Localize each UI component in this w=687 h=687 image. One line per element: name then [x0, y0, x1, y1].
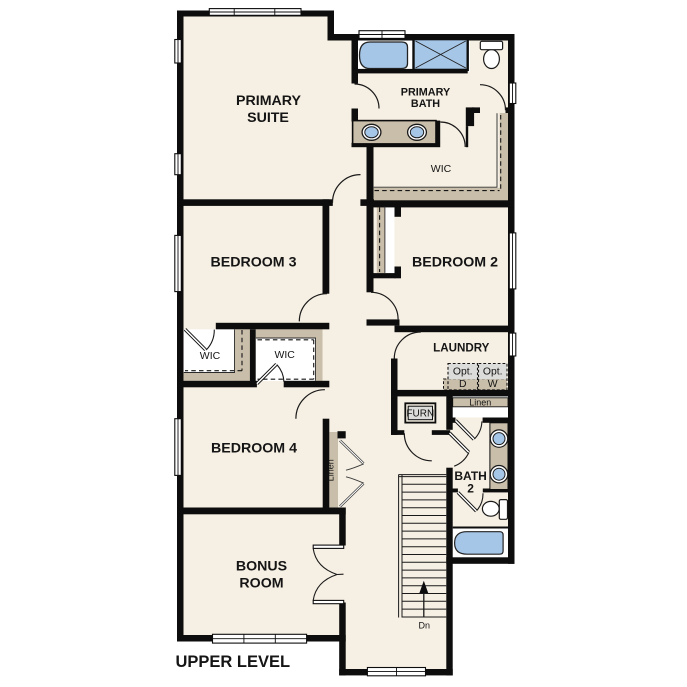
svg-text:Dn: Dn [419, 621, 431, 631]
svg-text:W: W [488, 379, 498, 390]
svg-text:D: D [459, 379, 467, 390]
svg-text:Linen: Linen [326, 459, 336, 481]
svg-text:BONUS: BONUS [236, 559, 287, 575]
svg-text:BATH: BATH [411, 98, 440, 110]
svg-text:WIC: WIC [431, 163, 452, 175]
svg-text:UPPER LEVEL: UPPER LEVEL [176, 653, 291, 671]
svg-text:Opt.: Opt. [483, 367, 503, 378]
svg-text:ROOM: ROOM [239, 576, 283, 592]
svg-text:Linen: Linen [469, 397, 491, 407]
svg-text:PRIMARY: PRIMARY [401, 86, 451, 98]
svg-text:BEDROOM 3: BEDROOM 3 [211, 254, 297, 270]
svg-text:BEDROOM 2: BEDROOM 2 [412, 254, 498, 270]
svg-text:Opt.: Opt. [453, 367, 473, 378]
svg-text:LAUNDRY: LAUNDRY [433, 342, 490, 355]
svg-text:BEDROOM 4: BEDROOM 4 [211, 441, 297, 457]
svg-text:SUITE: SUITE [247, 110, 289, 126]
svg-text:WIC: WIC [200, 350, 221, 362]
svg-text:WIC: WIC [274, 349, 295, 361]
svg-text:PRIMARY: PRIMARY [236, 93, 301, 109]
svg-text:FURN: FURN [406, 409, 434, 420]
svg-text:2: 2 [467, 481, 474, 495]
